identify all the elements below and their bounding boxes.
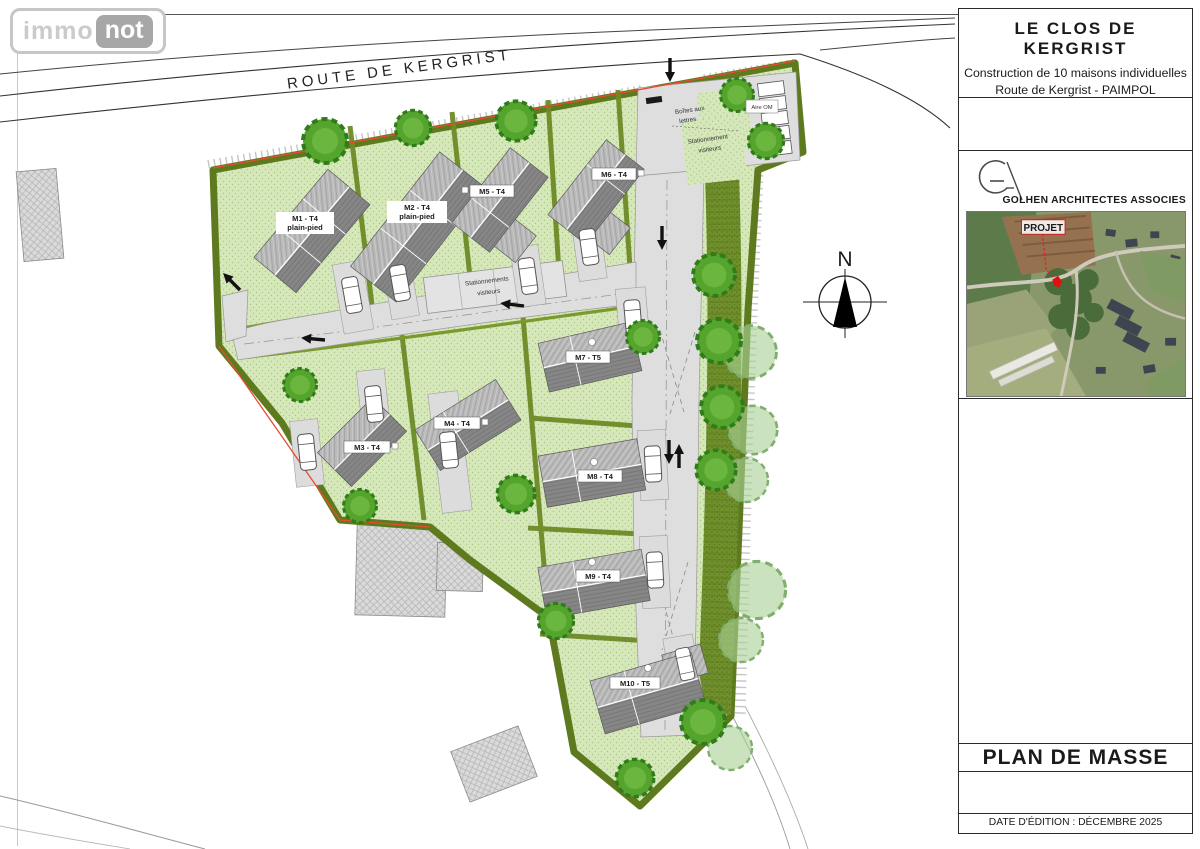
project-title: LE CLOS DE KERGRIST: [963, 19, 1188, 59]
label-M2: M2 - T4: [404, 203, 431, 212]
aerial-photo: PROJET: [966, 211, 1186, 397]
immonot-logo-immo: immo: [13, 17, 94, 46]
immonot-logo-not: not: [96, 15, 153, 48]
empty-box-3: [959, 772, 1192, 814]
label-M5: M5 - T4: [479, 187, 506, 196]
label-M7: M7 - T5: [575, 353, 601, 362]
label-M10: M10 - T5: [620, 679, 650, 688]
plan-title-box: PLAN DE MASSE: [959, 744, 1192, 772]
label-M6: M6 - T4: [601, 170, 628, 179]
label-M1-sub: plain-pied: [287, 223, 323, 232]
plan-de-masse-page: immo not: [0, 0, 1200, 849]
projet-label: PROJET: [1024, 223, 1064, 234]
label-M4: M4 - T4: [444, 419, 471, 428]
architect-box: GOLHEN ARCHITECTES ASSOCIES: [959, 151, 1192, 399]
waste-area-label: Aire OM: [751, 105, 772, 111]
site-plan-drawing: ROUTE DE KERGRIST M1 - T4 plain-pied M2 …: [0, 0, 958, 849]
empty-box-1: [959, 98, 1192, 151]
empty-box-2: [959, 399, 1192, 744]
label-M1: M1 - T4: [292, 214, 319, 223]
architect-name: GOLHEN ARCHITECTES ASSOCIES: [1002, 195, 1186, 206]
north-label: N: [837, 248, 852, 271]
label-M8: M8 - T4: [587, 472, 614, 481]
label-M9: M9 - T4: [585, 572, 612, 581]
edition-date: DATE D'ÉDITION : DÉCEMBRE 2025: [959, 814, 1192, 833]
immonot-logo[interactable]: immo not: [10, 8, 166, 54]
project-title-box: LE CLOS DE KERGRIST Construction de 10 m…: [959, 9, 1192, 98]
project-subtitle-2: Route de Kergrist - PAIMPOL: [995, 83, 1155, 97]
label-M2-sub: plain-pied: [399, 212, 435, 221]
label-M3: M3 - T4: [354, 443, 381, 452]
plan-title: PLAN DE MASSE: [959, 746, 1192, 770]
road-name-label: ROUTE DE KERGRIST: [286, 46, 513, 92]
title-block: LE CLOS DE KERGRIST Construction de 10 m…: [958, 8, 1193, 834]
north-arrow: N: [803, 248, 887, 338]
project-subtitle-1: Construction de 10 maisons individuelles: [964, 66, 1187, 80]
